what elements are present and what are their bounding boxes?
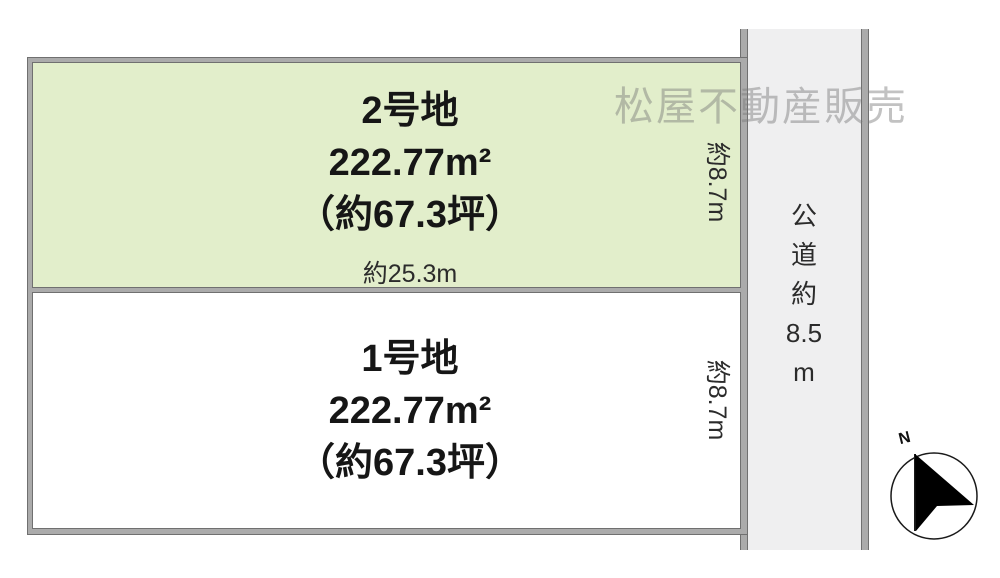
company-watermark: 松屋不動産販売	[614, 74, 908, 132]
plot-1-label: 1号地 222.77m² （約67.3坪）	[297, 333, 523, 489]
land-plot-diagram: 公 道 約 8.5 m 2号地 222.77m² （約67.3坪） 約25.3m…	[0, 0, 1000, 578]
plot-2-depth-dimension: 約8.7m	[701, 142, 737, 223]
plot-2-name: 2号地	[297, 85, 523, 137]
plot-2-tsubo: （約67.3坪）	[297, 189, 523, 241]
plot-2-label: 2号地 222.77m² （約67.3坪）	[297, 85, 523, 241]
road-label-char: m	[793, 353, 815, 392]
road-label-char: 公	[791, 197, 817, 236]
road-label: 公 道 約 8.5 m	[786, 197, 822, 392]
road-label-char: 8.5	[786, 314, 822, 353]
compass-icon	[884, 446, 984, 546]
plot-1-area-size: 222.77m²	[297, 385, 523, 437]
road-label-char: 道	[791, 236, 817, 275]
plot-1-depth-dimension: 約8.7m	[701, 360, 737, 441]
road-label-char: 約	[791, 275, 817, 314]
plot-2-frontage-dimension: 約25.3m	[363, 254, 457, 290]
plot-1-name: 1号地	[297, 333, 523, 385]
plot-2-area-size: 222.77m²	[297, 137, 523, 189]
plot-1-tsubo: （約67.3坪）	[297, 437, 523, 489]
